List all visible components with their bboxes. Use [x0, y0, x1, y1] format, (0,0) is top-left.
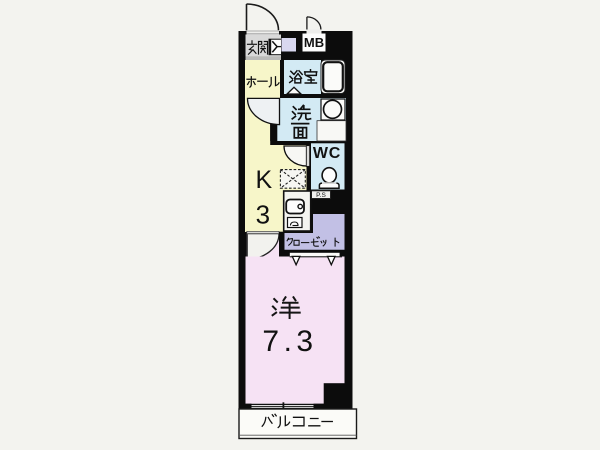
svg-text:MB: MB — [304, 35, 324, 50]
svg-text:K: K — [255, 166, 272, 194]
svg-text:7.3: 7.3 — [262, 325, 317, 358]
svg-text:3: 3 — [256, 200, 270, 230]
svg-text:WC: WC — [313, 145, 341, 162]
svg-text:P.S: P.S — [316, 192, 326, 199]
